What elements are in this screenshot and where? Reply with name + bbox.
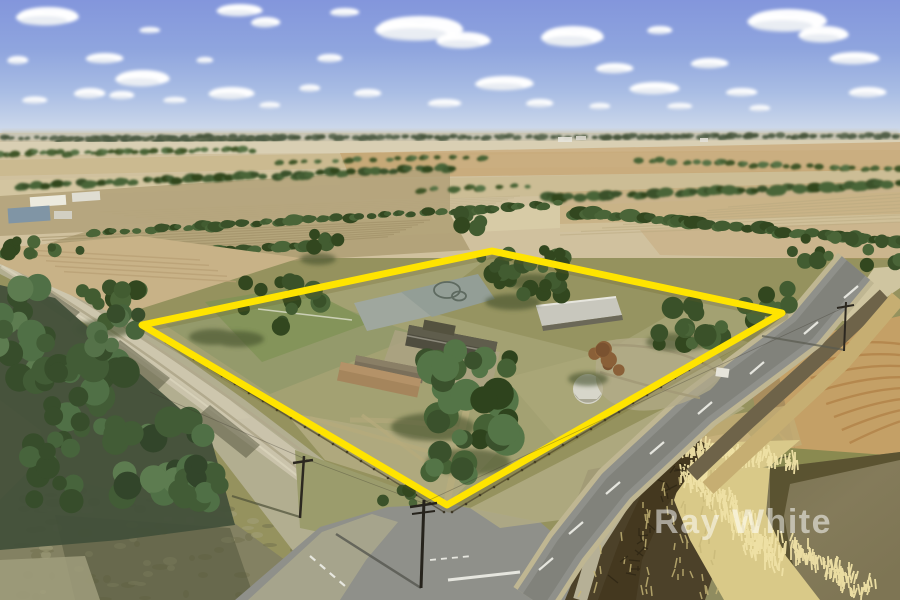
svg-text:Ray White: Ray White xyxy=(654,503,832,541)
